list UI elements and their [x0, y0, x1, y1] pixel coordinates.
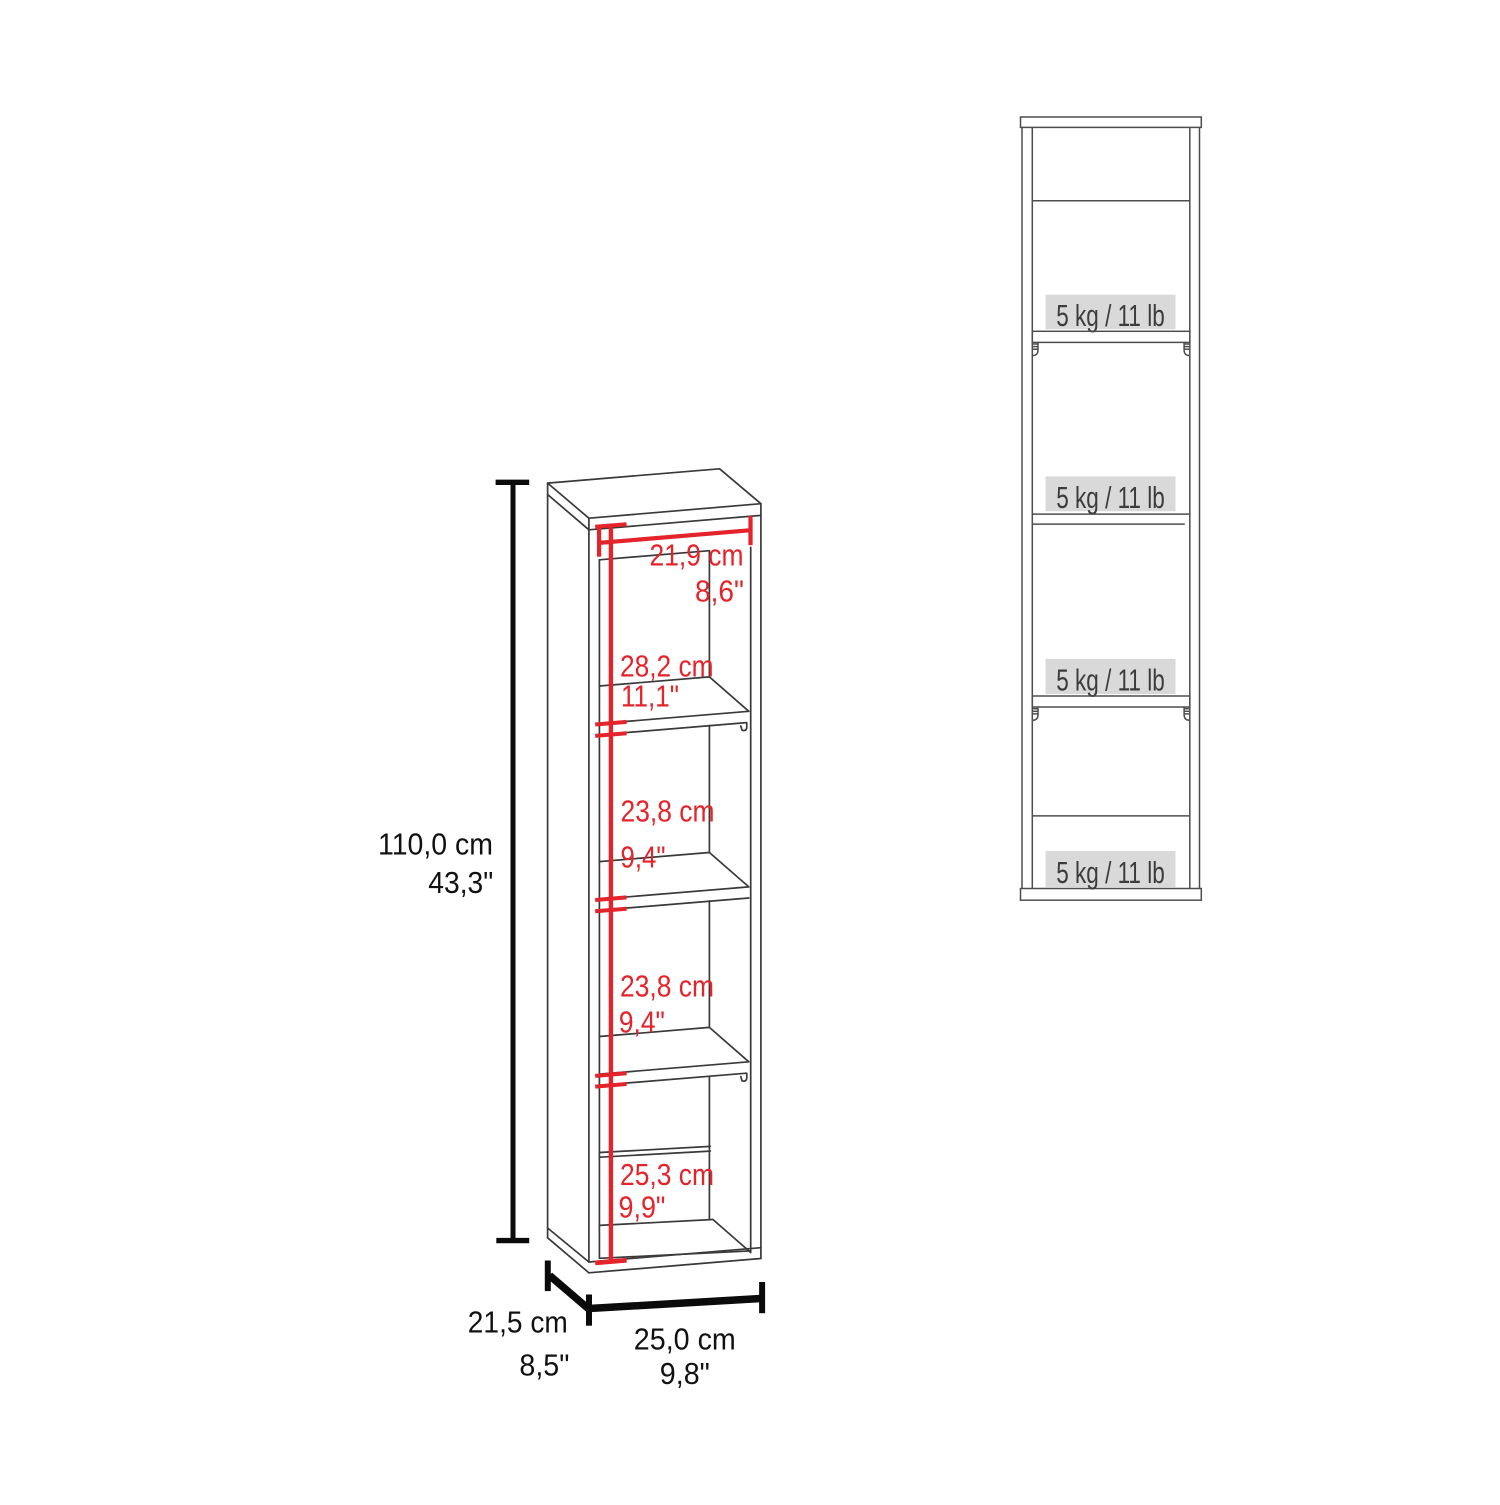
svg-text:5 kg / 11 lb: 5 kg / 11 lb: [1056, 856, 1165, 890]
svg-text:43,3": 43,3": [428, 866, 493, 900]
svg-text:110,0 cm: 110,0 cm: [378, 827, 493, 861]
svg-text:23,8 cm: 23,8 cm: [620, 970, 714, 1004]
svg-text:28,2 cm: 28,2 cm: [620, 650, 714, 684]
svg-text:5 kg / 11 lb: 5 kg / 11 lb: [1056, 664, 1165, 698]
svg-text:9,8": 9,8": [660, 1357, 710, 1391]
svg-text:9,4": 9,4": [619, 1006, 665, 1040]
svg-text:21,9 cm: 21,9 cm: [650, 539, 744, 573]
svg-text:21,5 cm: 21,5 cm: [468, 1306, 568, 1340]
svg-text:9,9": 9,9": [619, 1191, 666, 1225]
svg-text:9,4": 9,4": [621, 841, 666, 875]
svg-text:5 kg / 11 lb: 5 kg / 11 lb: [1056, 481, 1165, 515]
svg-text:11,1": 11,1": [621, 680, 679, 714]
svg-text:25,3 cm: 25,3 cm: [620, 1158, 714, 1192]
svg-text:8,6": 8,6": [695, 575, 744, 609]
svg-text:5 kg / 11 lb: 5 kg / 11 lb: [1056, 299, 1165, 333]
svg-text:25,0 cm: 25,0 cm: [634, 1323, 736, 1357]
svg-text:23,8 cm: 23,8 cm: [621, 795, 715, 829]
svg-text:8,5": 8,5": [519, 1349, 569, 1383]
